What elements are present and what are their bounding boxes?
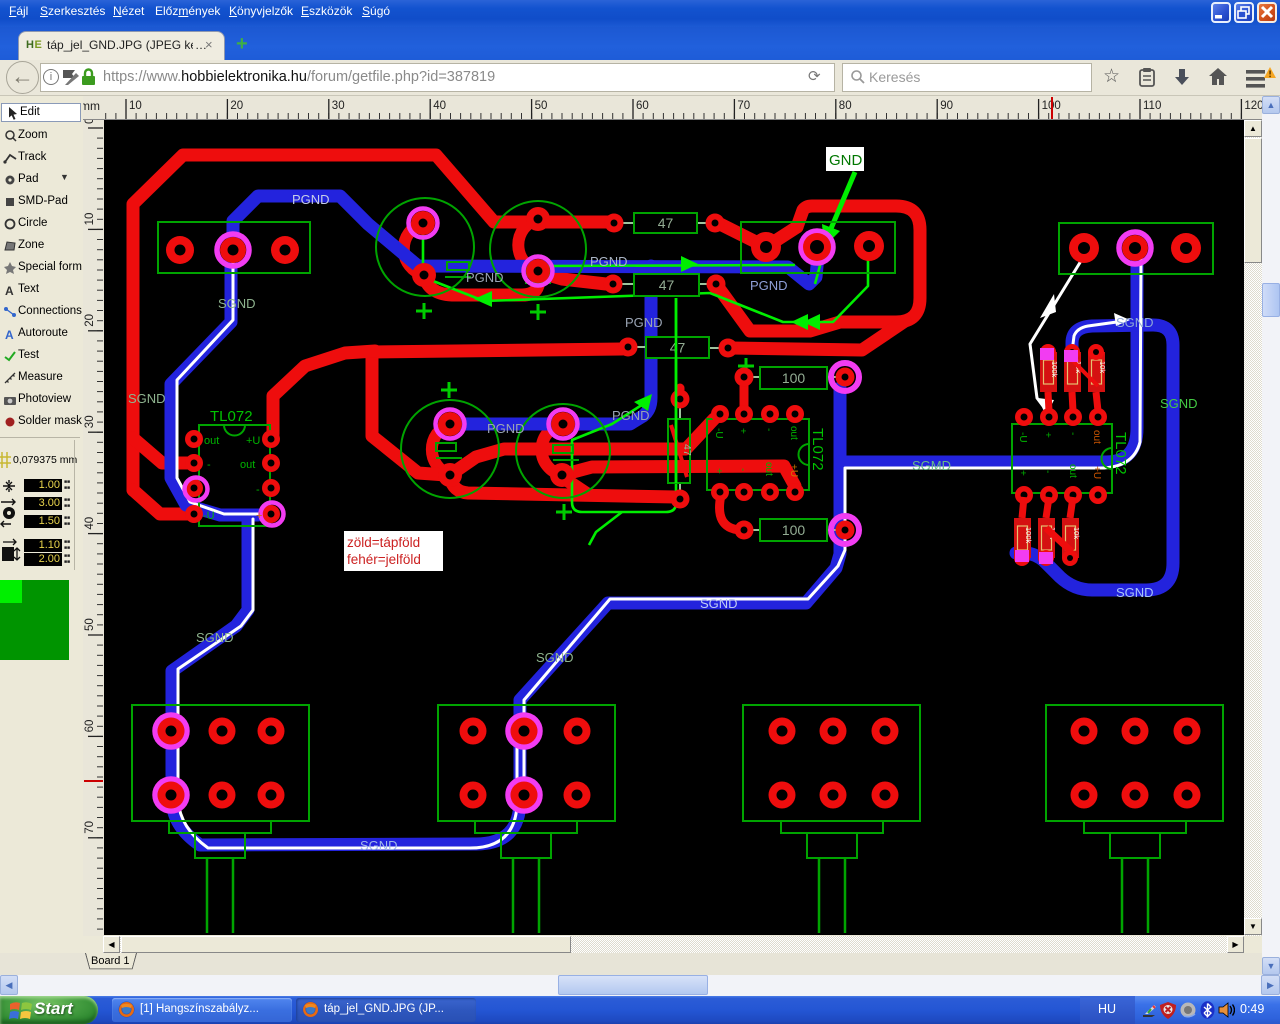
svg-text:70: 70 <box>84 821 96 834</box>
svg-text:-: - <box>1042 470 1053 473</box>
svg-text:+U: +U <box>788 464 799 477</box>
svg-text:GND: GND <box>829 152 863 169</box>
svg-text:60: 60 <box>84 720 96 733</box>
svg-text:SGND: SGND <box>1116 585 1154 600</box>
svg-text:-: - <box>737 468 748 471</box>
svg-text:30: 30 <box>332 100 345 112</box>
svg-text:+U: +U <box>1091 466 1102 479</box>
svg-text:fehér=jelföld: fehér=jelföld <box>347 552 421 567</box>
svg-text:120: 120 <box>1244 100 1263 112</box>
svg-text:10k: 10k <box>1072 527 1081 539</box>
svg-text:-U: -U <box>713 428 724 439</box>
svg-text:20: 20 <box>84 314 96 327</box>
svg-text:20: 20 <box>230 100 243 112</box>
svg-text:30: 30 <box>84 415 96 428</box>
svg-text:+: + <box>713 468 724 474</box>
svg-text:80: 80 <box>839 100 852 112</box>
svg-text:PGND: PGND <box>487 421 525 436</box>
svg-text:SGMD: SGMD <box>912 458 951 473</box>
svg-text:PGND: PGND <box>612 408 650 423</box>
svg-text:100k: 100k <box>1050 361 1059 378</box>
svg-text:SGND: SGND <box>218 296 256 311</box>
svg-text:PGND: PGND <box>625 315 663 330</box>
svg-text:out: out <box>763 462 774 476</box>
svg-text:out: out <box>204 435 219 447</box>
svg-text:-: - <box>207 459 211 471</box>
svg-text:50: 50 <box>535 100 548 112</box>
svg-text:SGND: SGND <box>1160 396 1198 411</box>
svg-text:60: 60 <box>636 100 649 112</box>
svg-text:PGND: PGND <box>750 278 788 293</box>
svg-text:-U: -U <box>1017 432 1028 443</box>
svg-text:-: - <box>1067 432 1078 435</box>
svg-text:-: - <box>256 484 260 496</box>
svg-text:10k: 10k <box>1098 361 1107 373</box>
svg-text:PGND: PGND <box>466 270 504 285</box>
svg-text:A: A <box>5 284 14 297</box>
svg-text:50: 50 <box>84 618 96 631</box>
svg-text:0: 0 <box>84 120 96 124</box>
svg-text:10: 10 <box>129 100 142 112</box>
svg-text:40: 40 <box>433 100 446 112</box>
svg-text:-U: -U <box>203 510 215 522</box>
svg-text:10: 10 <box>84 213 96 226</box>
svg-text:100: 100 <box>782 522 806 538</box>
svg-text:out: out <box>1067 464 1078 478</box>
svg-text:PGND: PGND <box>590 254 628 269</box>
svg-text:+U: +U <box>246 435 260 447</box>
svg-text:40: 40 <box>84 517 96 530</box>
svg-text:out: out <box>1091 430 1102 444</box>
svg-text:TL072: TL072 <box>210 408 253 425</box>
svg-text:SGND: SGND <box>128 391 166 406</box>
svg-text:90: 90 <box>940 100 953 112</box>
svg-text:SGND: SGND <box>536 650 574 665</box>
svg-text:out: out <box>788 426 799 440</box>
svg-text:mm: mm <box>80 99 100 113</box>
svg-text:47: 47 <box>658 215 674 231</box>
svg-text:47: 47 <box>670 340 686 356</box>
svg-text:SGND: SGND <box>360 838 398 853</box>
svg-text:+: + <box>1042 432 1053 438</box>
svg-text:47: 47 <box>659 277 675 293</box>
svg-text:110: 110 <box>1143 100 1161 112</box>
svg-text:TL072: TL072 <box>809 428 826 471</box>
svg-text:SGND: SGND <box>1116 315 1154 330</box>
svg-text:47: 47 <box>681 444 693 456</box>
svg-text:+: + <box>256 510 262 522</box>
svg-text:-: - <box>763 428 774 431</box>
svg-text:100: 100 <box>782 370 806 386</box>
svg-text:+: + <box>1017 470 1028 476</box>
svg-text:SGND: SGND <box>700 596 738 611</box>
svg-text:zöld=tápföld: zöld=tápföld <box>347 535 420 550</box>
svg-text:70: 70 <box>737 100 750 112</box>
svg-text:+: + <box>737 428 748 434</box>
svg-text:100k: 100k <box>1024 527 1033 544</box>
svg-text:out: out <box>240 459 255 471</box>
svg-text:A: A <box>5 328 14 341</box>
svg-text:PGND: PGND <box>292 192 330 207</box>
svg-text:SGND: SGND <box>196 630 234 645</box>
svg-text:TL072: TL072 <box>1112 432 1129 475</box>
